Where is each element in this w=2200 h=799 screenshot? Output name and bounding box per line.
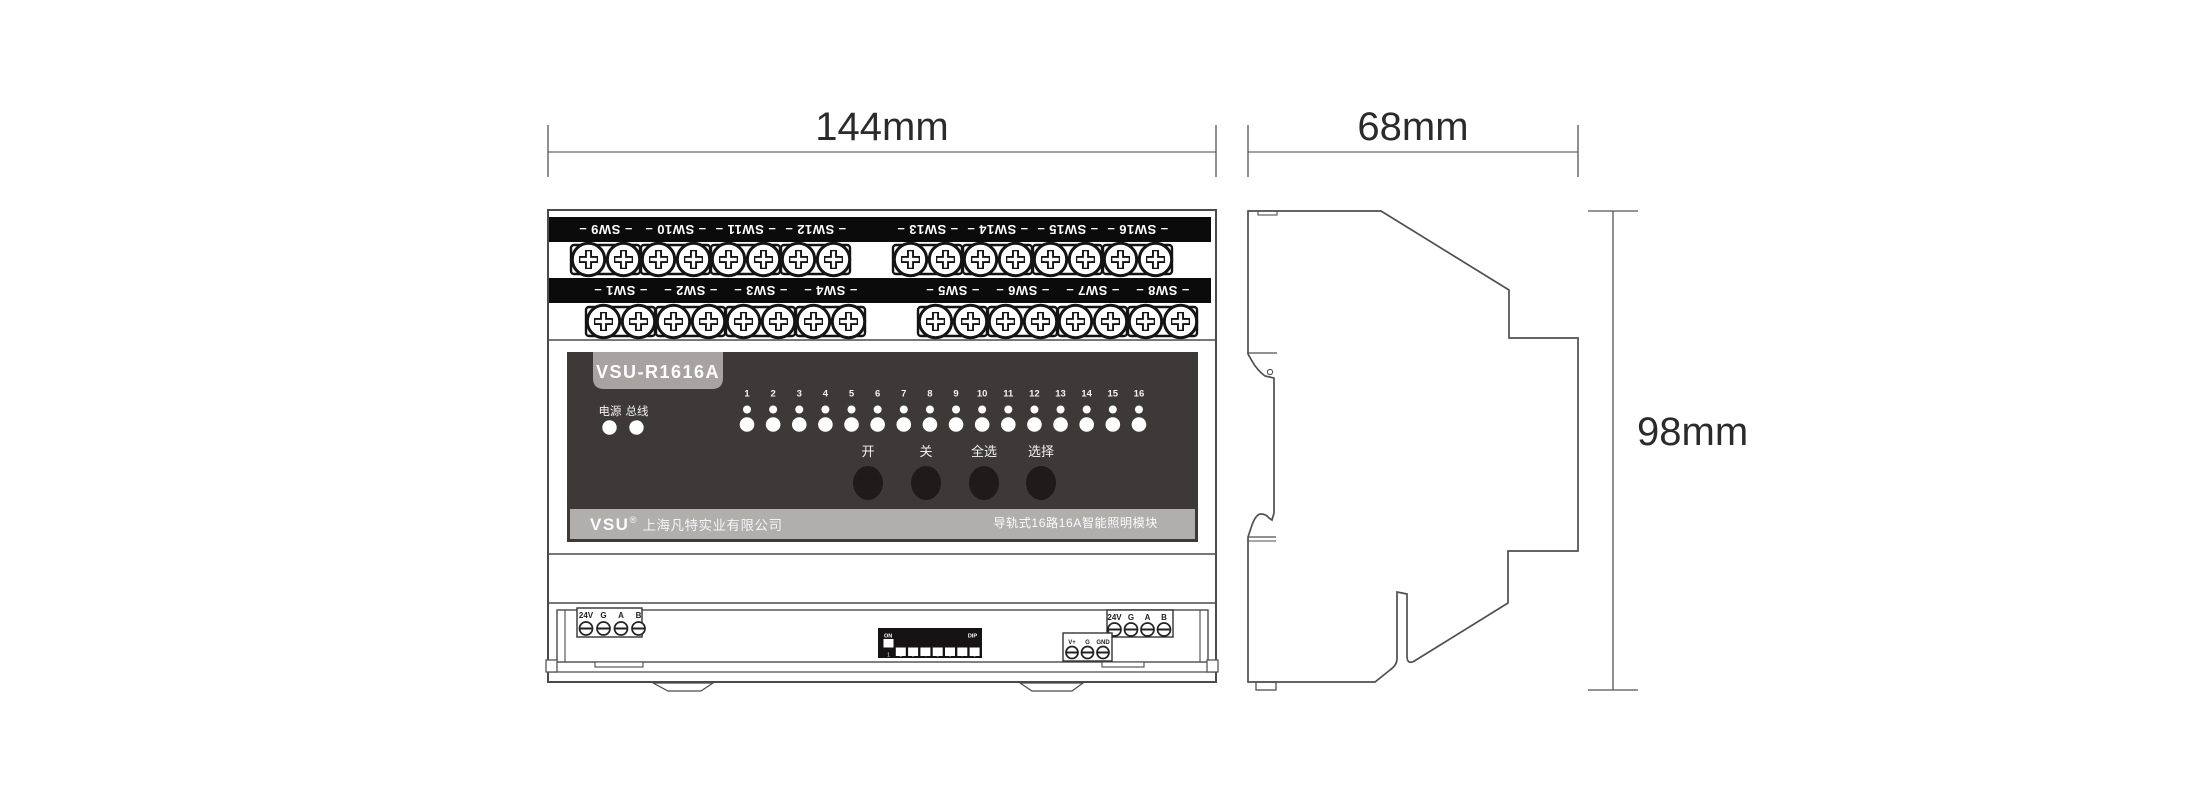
slotted-screw: [1066, 647, 1078, 659]
channel-led: [1004, 406, 1012, 414]
channel-number: 16: [1134, 389, 1145, 400]
mounting-tab-left: [653, 683, 713, 691]
channel-dot: [1132, 417, 1147, 432]
phillips-screw: [1059, 305, 1091, 337]
phillips-screw: [1139, 243, 1171, 275]
rail-slot-right: [1102, 662, 1144, 667]
slotted-screw: [580, 622, 593, 635]
channel-number: 7: [901, 389, 906, 400]
slotted-screw: [1141, 623, 1154, 636]
phillips-screw: [1129, 305, 1161, 337]
dip-switch: ONDIP12345678: [878, 628, 982, 659]
sw-terminal-label: – SW15 –: [1037, 222, 1098, 237]
dip-switch-number: 6: [949, 653, 952, 659]
sw-terminal-label: – SW4 –: [804, 283, 857, 298]
channel-number: 9: [953, 389, 958, 400]
phillips-screw: [727, 305, 759, 337]
phillips-screw: [1034, 243, 1066, 275]
brand-text: VSU: [590, 515, 629, 534]
dip-on-label: ON: [884, 634, 892, 640]
channel-dot: [949, 417, 964, 432]
channel-dot: [740, 417, 755, 432]
channel-dot: [1027, 417, 1042, 432]
channel-number: 15: [1108, 389, 1119, 400]
power-bus-terminal-right: 24VGAB: [1107, 610, 1173, 637]
slotted-screw: [1097, 647, 1109, 659]
phillips-screw: [622, 305, 654, 337]
company-name: 上海凡特实业有限公司: [642, 518, 782, 533]
channel-dot: [818, 417, 833, 432]
channel-number: 13: [1055, 389, 1066, 400]
channel-number: 2: [770, 389, 775, 400]
channel-dot: [1053, 417, 1068, 432]
channel-led: [900, 406, 908, 414]
terminal-pin-label: G: [600, 611, 606, 620]
sw-terminal-label: – SW1 –: [594, 283, 647, 298]
channel-dot: [1079, 417, 1094, 432]
phillips-screw: [894, 243, 926, 275]
phillips-screw: [1104, 243, 1136, 275]
sw-terminal-label: – SW13 –: [897, 222, 958, 237]
channel-led: [926, 406, 934, 414]
dip-switch-number: 4: [924, 653, 927, 659]
channel-led: [1057, 406, 1065, 414]
channel-number: 14: [1081, 389, 1092, 400]
phillips-screw: [954, 305, 986, 337]
slotted-screw: [597, 622, 610, 635]
channel-number: 6: [875, 389, 880, 400]
phillips-screw: [832, 305, 864, 337]
channel-number: 10: [977, 389, 988, 400]
phillips-screw: [677, 243, 709, 275]
channel-dot: [975, 417, 990, 432]
slotted-screw: [615, 622, 628, 635]
terminal-pin-label: 24V: [579, 611, 594, 620]
status-led-label: 电源: [599, 404, 622, 418]
channel-led: [874, 406, 882, 414]
phillips-screw: [607, 243, 639, 275]
model-badge-label: VSU-R1616A: [596, 362, 720, 382]
mounting-tab-right: [1020, 683, 1083, 691]
dip-switch-number: 2: [899, 653, 902, 659]
status-led: [602, 420, 616, 434]
sw-terminal-label: – SW11 –: [715, 222, 775, 237]
sw-terminal-label: – SW8 –: [1136, 283, 1189, 298]
side-bottom-foot: [1256, 682, 1276, 690]
panel-button-label: 全选: [971, 444, 997, 459]
panel-button: [969, 466, 999, 500]
phillips-screw: [1094, 305, 1126, 337]
power-bus-terminal-left: 24VGAB: [577, 608, 645, 637]
slotted-screw: [1082, 647, 1094, 659]
sw-terminal-label: – SW10 –: [645, 222, 706, 237]
front-view: – SW9 –– SW10 –– SW11 –– SW12 –– SW13 ––…: [546, 210, 1218, 691]
dip-switch-lever: [884, 639, 894, 648]
terminal-pin-label: G: [1085, 640, 1090, 646]
edge-notch-left: [546, 660, 557, 672]
channel-dot: [1106, 417, 1121, 432]
channel-led: [1030, 406, 1038, 414]
dip-switch-number: 8: [973, 653, 976, 659]
terminal-pin-label: V+: [1068, 640, 1076, 646]
channel-led: [978, 406, 986, 414]
channel-led: [952, 406, 960, 414]
channel-led: [743, 406, 751, 414]
dimension-label-height: 98mm: [1637, 410, 1748, 454]
phillips-screw: [747, 243, 779, 275]
dip-switch-number: 3: [912, 653, 915, 659]
phillips-screw: [1164, 305, 1196, 337]
channel-dot: [923, 417, 938, 432]
channel-led: [1083, 406, 1091, 414]
channel-led: [769, 406, 777, 414]
terminal-pin-label: GND: [1096, 640, 1110, 646]
slotted-screw: [1158, 623, 1171, 636]
edge-notch-right: [1207, 660, 1218, 672]
dip-dip-label: DIP: [968, 634, 978, 640]
panel-button: [1026, 466, 1056, 500]
phillips-screw: [989, 305, 1021, 337]
dip-switch-number: 5: [936, 653, 939, 659]
panel-button-label: 选择: [1028, 444, 1054, 459]
terminal-pin-label: A: [618, 611, 624, 620]
dip-switch-number: 7: [961, 653, 964, 659]
panel-button: [853, 466, 883, 500]
technical-drawing-page: 144mm 68mm 98mm – SW9 –– SW10 –– SW11 ––…: [0, 0, 2200, 799]
channel-dot: [844, 417, 859, 432]
phillips-screw: [587, 305, 619, 337]
label-bar-left-text: VSU®上海凡特实业有限公司: [590, 515, 782, 534]
terminal-pin-label: B: [636, 611, 642, 620]
terminal-pin-label: A: [1145, 613, 1151, 622]
panel-button: [911, 466, 941, 500]
channel-dot: [792, 417, 807, 432]
channel-led: [1135, 406, 1143, 414]
sw-terminal-label: – SW12 –: [785, 222, 846, 237]
phillips-screw: [1069, 243, 1101, 275]
phillips-screw: [642, 243, 674, 275]
channel-led: [1109, 406, 1117, 414]
channel-dot: [766, 417, 781, 432]
channel-dot: [896, 417, 911, 432]
dimension-front-width: 144mm: [548, 105, 1216, 177]
sw-terminal-label: – SW2 –: [664, 283, 717, 298]
phillips-screw: [919, 305, 951, 337]
sw-terminal-label: – SW16 –: [1107, 222, 1168, 237]
panel-button-label: 开: [861, 444, 874, 459]
channel-led: [821, 406, 829, 414]
panel-button-label: 关: [919, 444, 932, 459]
channel-number: 11: [1003, 389, 1014, 400]
sw-terminal-label: – SW5 –: [926, 283, 979, 298]
phillips-screw: [782, 243, 814, 275]
product-description: 导轨式16路16A智能照明模块: [993, 515, 1158, 530]
phillips-screw: [1024, 305, 1056, 337]
channel-led: [795, 406, 803, 414]
terminal-pin-label: 24V: [1107, 613, 1122, 622]
phillips-screw: [964, 243, 996, 275]
channel-number: 12: [1029, 389, 1040, 400]
dimension-label-front-width: 144mm: [815, 105, 948, 149]
terminal-pin-label: B: [1161, 613, 1167, 622]
sw-terminal-label: – SW3 –: [734, 283, 787, 298]
phillips-screw: [797, 305, 829, 337]
side-view: [1248, 211, 1578, 690]
sw-terminal-label: – SW6 –: [996, 283, 1049, 298]
phillips-screw: [762, 305, 794, 337]
channel-number: 5: [849, 389, 855, 400]
slotted-screw: [1125, 623, 1138, 636]
dimension-height: 98mm: [1588, 211, 1748, 690]
dip-switch-number: 1: [887, 653, 890, 659]
phillips-screw: [657, 305, 689, 337]
slotted-screw: [632, 622, 645, 635]
channel-led: [848, 406, 856, 414]
phillips-screw: [712, 243, 744, 275]
aux-terminal: V+GGND: [1063, 633, 1112, 661]
din-module-dimension-drawing: 144mm 68mm 98mm – SW9 –– SW10 –– SW11 ––…: [0, 0, 2200, 799]
channel-dot: [1001, 417, 1016, 432]
status-led-label: 总线: [626, 404, 649, 418]
dimension-label-side-width: 68mm: [1357, 105, 1468, 149]
registered-mark: ®: [629, 515, 636, 526]
phillips-screw: [572, 243, 604, 275]
phillips-screw: [692, 305, 724, 337]
channel-number: 4: [823, 389, 829, 400]
channel-number: 1: [744, 389, 750, 400]
phillips-screw: [929, 243, 961, 275]
dimension-side-width: 68mm: [1248, 105, 1578, 177]
rail-slot-left: [595, 662, 643, 667]
side-profile-outline: [1248, 211, 1578, 682]
status-led: [629, 420, 643, 434]
channel-number: 3: [797, 389, 802, 400]
din-clip-spring-notch: [1267, 369, 1272, 374]
sw-terminal-label: – SW14 –: [967, 222, 1028, 237]
terminal-pin-label: G: [1128, 613, 1134, 622]
sw-terminal-label: – SW7 –: [1066, 283, 1119, 298]
sw-terminal-label: – SW9 –: [579, 222, 632, 237]
channel-dot: [870, 417, 885, 432]
phillips-screw: [817, 243, 849, 275]
channel-number: 8: [927, 389, 932, 400]
front-panel: VSU-R1616A 电源总线 12345678910111213141516 …: [567, 352, 1198, 542]
phillips-screw: [999, 243, 1031, 275]
